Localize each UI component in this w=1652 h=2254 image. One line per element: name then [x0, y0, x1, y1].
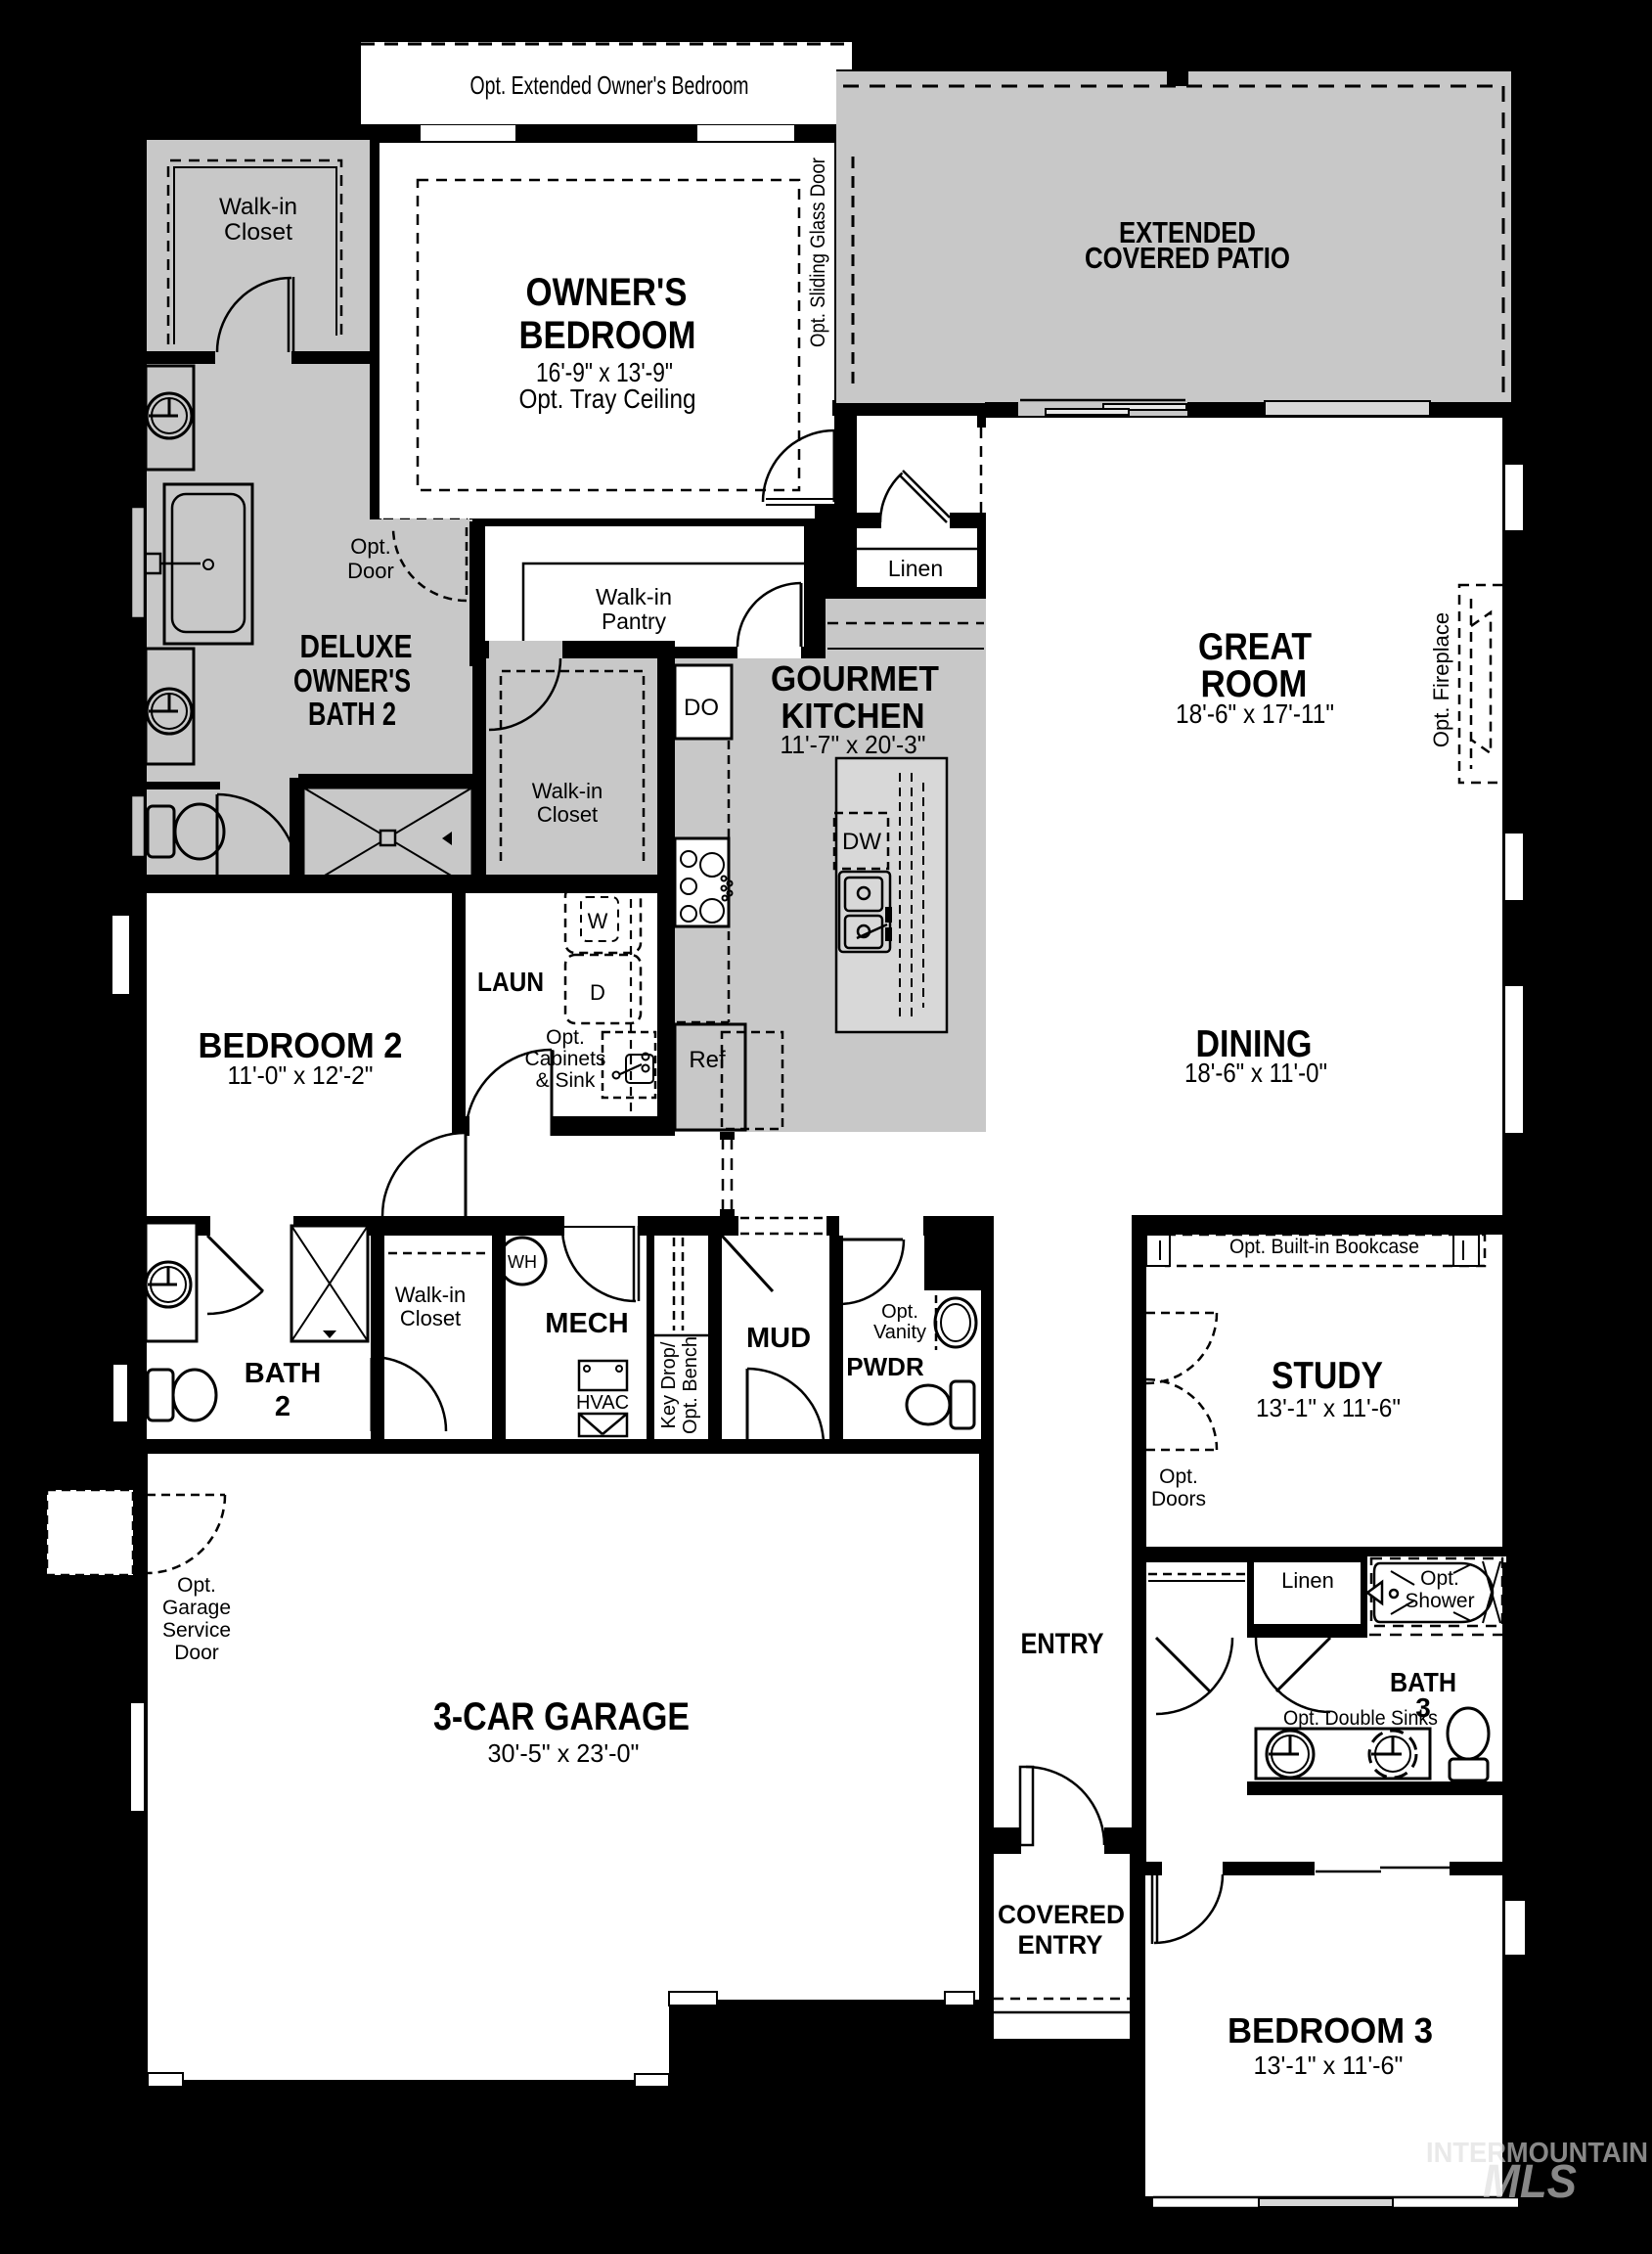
svg-text:18'-6" x 17'-11": 18'-6" x 17'-11" — [1176, 699, 1334, 729]
svg-text:Opt. Built-in Bookcase: Opt. Built-in Bookcase — [1229, 1236, 1419, 1258]
svg-text:Opt. Sliding Glass Door: Opt. Sliding Glass Door — [807, 158, 829, 347]
svg-text:Service: Service — [162, 1619, 231, 1642]
svg-text:Opt. Fireplace: Opt. Fireplace — [1429, 612, 1453, 747]
svg-text:3-CAR GARAGE: 3-CAR GARAGE — [433, 1695, 690, 1738]
svg-text:MUD: MUD — [746, 1323, 811, 1354]
svg-text:MLS: MLS — [1483, 2156, 1577, 2208]
svg-text:Closet: Closet — [537, 802, 598, 827]
svg-text:DW: DW — [842, 829, 881, 855]
svg-text:LAUN: LAUN — [477, 967, 544, 997]
svg-text:PWDR: PWDR — [846, 1352, 924, 1381]
svg-text:OWNER'S: OWNER'S — [526, 271, 688, 314]
svg-text:Opt.: Opt. — [1420, 1567, 1459, 1590]
svg-text:BEDROOM: BEDROOM — [519, 314, 696, 357]
svg-text:HVAC: HVAC — [576, 1392, 629, 1414]
svg-text:Shower: Shower — [1405, 1590, 1474, 1612]
svg-text:Opt.: Opt. — [350, 534, 391, 559]
svg-text:Walk-in: Walk-in — [219, 194, 297, 220]
svg-text:BEDROOM 2: BEDROOM 2 — [199, 1025, 403, 1065]
svg-text:STUDY: STUDY — [1272, 1355, 1383, 1397]
svg-text:Opt. Double Sinks: Opt. Double Sinks — [1283, 1707, 1438, 1730]
svg-text:11'-7" x 20'-3": 11'-7" x 20'-3" — [781, 730, 926, 759]
svg-text:Closet: Closet — [400, 1306, 461, 1330]
svg-text:Garage: Garage — [162, 1597, 231, 1619]
svg-text:13'-1" x 11'-6": 13'-1" x 11'-6" — [1256, 1393, 1401, 1422]
svg-text:Walk-in: Walk-in — [395, 1283, 467, 1307]
svg-text:W: W — [588, 909, 608, 933]
svg-text:Opt.: Opt. — [177, 1574, 216, 1597]
svg-text:ENTRY: ENTRY — [1018, 1930, 1103, 1960]
svg-text:Vanity: Vanity — [873, 1322, 926, 1343]
svg-text:Opt.: Opt. — [881, 1301, 918, 1323]
svg-text:Walk-in: Walk-in — [596, 584, 672, 609]
svg-text:BATH 2: BATH 2 — [308, 696, 396, 732]
svg-text:Key Drop/: Key Drop/ — [658, 1341, 680, 1428]
svg-text:D: D — [590, 980, 605, 1005]
svg-text:Walk-in: Walk-in — [532, 779, 603, 803]
svg-text:30'-5" x 23'-0": 30'-5" x 23'-0" — [488, 1738, 640, 1768]
svg-text:Linen: Linen — [888, 556, 943, 581]
svg-text:BATH: BATH — [245, 1358, 321, 1389]
svg-text:Opt. Extended Owner's Bedroom: Opt. Extended Owner's Bedroom — [470, 70, 749, 100]
svg-text:Opt. Tray Ceiling: Opt. Tray Ceiling — [519, 383, 696, 414]
svg-text:DELUXE: DELUXE — [300, 628, 413, 664]
svg-text:Closet: Closet — [224, 219, 292, 246]
svg-text:Opt. Bench: Opt. Bench — [680, 1336, 701, 1434]
svg-text:COVERED PATIO: COVERED PATIO — [1085, 241, 1290, 275]
svg-text:ENTRY: ENTRY — [1021, 1628, 1104, 1660]
svg-text:OWNER'S: OWNER'S — [293, 662, 411, 699]
svg-text:Door: Door — [347, 559, 394, 583]
svg-text:Doors: Doors — [1151, 1488, 1206, 1510]
svg-text:Opt.: Opt. — [546, 1026, 585, 1049]
svg-text:DO: DO — [684, 695, 719, 721]
svg-text:Linen: Linen — [1281, 1568, 1334, 1593]
svg-text:Door: Door — [174, 1642, 219, 1664]
svg-text:Ref: Ref — [689, 1047, 726, 1073]
svg-text:BEDROOM 3: BEDROOM 3 — [1228, 2010, 1433, 2051]
svg-text:& Sink: & Sink — [536, 1069, 596, 1092]
svg-text:Opt.: Opt. — [1159, 1465, 1198, 1488]
svg-text:GREAT: GREAT — [1198, 626, 1312, 668]
svg-text:WH: WH — [508, 1252, 537, 1272]
svg-text:Pantry: Pantry — [602, 609, 666, 634]
svg-text:11'-0" x 12'-2": 11'-0" x 12'-2" — [228, 1060, 374, 1090]
svg-text:COVERED: COVERED — [998, 1900, 1125, 1929]
svg-text:13'-1" x 11'-6": 13'-1" x 11'-6" — [1254, 2051, 1404, 2080]
svg-text:MECH: MECH — [545, 1308, 628, 1339]
svg-text:2: 2 — [275, 1391, 290, 1422]
svg-text:GOURMET: GOURMET — [771, 658, 939, 699]
svg-text:18'-6" x 11'-0": 18'-6" x 11'-0" — [1184, 1058, 1327, 1088]
